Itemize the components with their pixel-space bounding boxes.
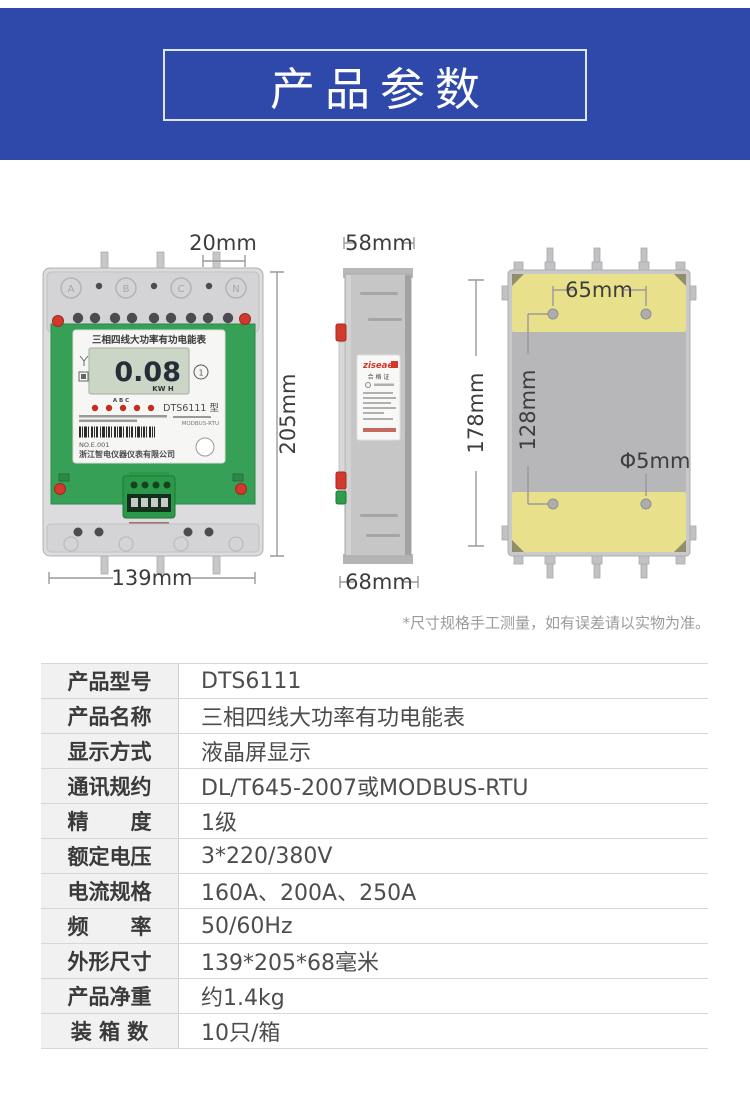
model-text: DTS6111 型 <box>163 403 219 414</box>
spec-value: 三相四线大功率有功电能表 <box>179 699 708 733</box>
dim-58mm: 58mm <box>344 231 414 255</box>
page-title: 产品参数 <box>260 53 490 118</box>
measurement-disclaimer: *尺寸规格手工测量，如有误差请以实物为准。 <box>402 612 710 633</box>
dim-178mm: 178mm <box>464 280 488 546</box>
dim-139mm: 139mm <box>49 566 255 590</box>
svg-text:68mm: 68mm <box>345 570 413 594</box>
spec-label: 产品名称 <box>41 699 179 733</box>
lcd-unit: KW H <box>152 385 174 393</box>
spec-value: DTS6111 <box>179 664 708 698</box>
spec-value: 约1.4kg <box>179 979 708 1013</box>
product-parameters-page: 产品参数 A B C N <box>0 0 750 1110</box>
table-row: 外形尺寸139*205*68毫米 <box>41 944 708 979</box>
dim-20mm: 20mm <box>189 231 257 267</box>
indicator-labels: A B C <box>113 398 129 404</box>
terminal-label-a: A <box>68 284 75 295</box>
spec-value: 液晶屏显示 <box>179 734 708 768</box>
svg-text:65mm: 65mm <box>565 278 633 302</box>
table-row: 频 率50/60Hz <box>41 909 708 944</box>
svg-text:139mm: 139mm <box>112 566 193 590</box>
spec-value: 3*220/380V <box>179 839 708 873</box>
faceplate-title: 三相四线大功率有功电能表 <box>92 334 207 346</box>
spec-value: 139*205*68毫米 <box>179 944 708 978</box>
spec-value: 1级 <box>179 804 708 838</box>
table-row: 电流规格160A、200A、250A <box>41 874 708 909</box>
spec-label: 显示方式 <box>41 734 179 768</box>
lcd-value: 0.08 <box>114 357 181 388</box>
table-row: 产品净重约1.4kg <box>41 979 708 1014</box>
meter-back-view: 178mm <box>450 226 715 600</box>
table-row: 装 箱 数10只/箱 <box>41 1014 708 1049</box>
meter-side-view: 58mm ziseae 合 格 证 <box>310 226 440 600</box>
header-band: 产品参数 <box>0 8 750 160</box>
spec-label: 电流规格 <box>41 874 179 908</box>
spec-label: 产品型号 <box>41 664 179 698</box>
company-text: 浙江智电仪器仪表有限公司 <box>79 449 175 459</box>
svg-text:20mm: 20mm <box>189 231 257 255</box>
bottom-terminal-zone <box>47 524 259 552</box>
dim-68mm: 68mm <box>340 570 418 594</box>
table-row: 通讯规约DL/T645-2007或MODBUS-RTU <box>41 769 708 804</box>
spec-value: 10只/箱 <box>179 1014 708 1048</box>
spec-label: 通讯规约 <box>41 769 179 803</box>
table-row: 产品名称三相四线大功率有功电能表 <box>41 699 708 734</box>
spec-label: 外形尺寸 <box>41 944 179 978</box>
meter-faceplate: 三相四线大功率有功电能表 0.08 KW H 1 A B C DTS6111 型 <box>73 330 225 463</box>
spec-label: 频 率 <box>41 909 179 943</box>
terminal-label-c: C <box>178 284 185 295</box>
svg-text:128mm: 128mm <box>516 370 540 451</box>
serial-text: NO.E.001 <box>79 441 109 449</box>
svg-text:Φ5mm: Φ5mm <box>620 449 691 473</box>
dim-205mm: 205mm <box>270 272 300 556</box>
spec-label: 精 度 <box>41 804 179 838</box>
label-company-line <box>363 428 396 432</box>
certificate-title: 合 格 证 <box>368 373 390 381</box>
spec-label: 额定电压 <box>41 839 179 873</box>
svg-text:1: 1 <box>198 369 203 378</box>
certificate-label: ziseae 合 格 证 <box>357 355 400 440</box>
table-row: 产品型号DTS6111 <box>41 664 708 699</box>
seal-button <box>196 438 214 456</box>
spec-value: DL/T645-2007或MODBUS-RTU <box>179 769 708 803</box>
section-title-box: 产品参数 <box>163 49 587 121</box>
brand-logo: ziseae <box>362 361 393 371</box>
svg-text:205mm: 205mm <box>276 374 300 455</box>
spec-value: 160A、200A、250A <box>179 874 708 908</box>
side-clips <box>336 324 346 504</box>
table-row: 显示方式液晶屏显示 <box>41 734 708 769</box>
comm-connector <box>123 472 175 531</box>
terminal-label-n: N <box>232 284 239 295</box>
spec-value: 50/60Hz <box>179 909 708 943</box>
spec-table: 产品型号DTS6111 产品名称三相四线大功率有功电能表 显示方式液晶屏显示 通… <box>41 663 708 1049</box>
spec-label: 产品净重 <box>41 979 179 1013</box>
svg-text:58mm: 58mm <box>345 231 413 255</box>
meter-front-view: A B C N 三相四线大功率有功电能表 <box>33 226 305 600</box>
protocol-text: MODBUS-RTU <box>182 421 219 427</box>
terminal-label-b: B <box>123 284 130 295</box>
spec-label: 装 箱 数 <box>41 1014 179 1048</box>
table-row: 额定电压3*220/380V <box>41 839 708 874</box>
svg-text:178mm: 178mm <box>464 373 488 454</box>
top-terminal-zone: A B C N <box>47 272 259 332</box>
dim-65mm: 65mm <box>553 278 646 306</box>
table-row: 精 度1级 <box>41 804 708 839</box>
